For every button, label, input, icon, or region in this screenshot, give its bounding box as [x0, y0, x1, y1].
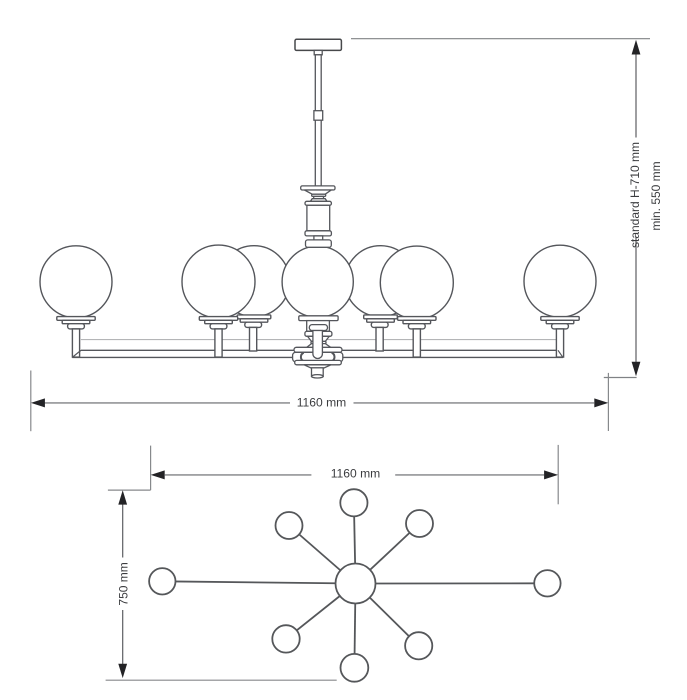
svg-text:min. 550 mm: min. 550 mm — [649, 161, 663, 230]
svg-text:1160 mm: 1160 mm — [331, 466, 381, 480]
svg-text:standard H-710 mm: standard H-710 mm — [628, 142, 642, 248]
svg-text:1160 mm: 1160 mm — [297, 396, 347, 410]
svg-text:750 mm: 750 mm — [116, 562, 130, 605]
